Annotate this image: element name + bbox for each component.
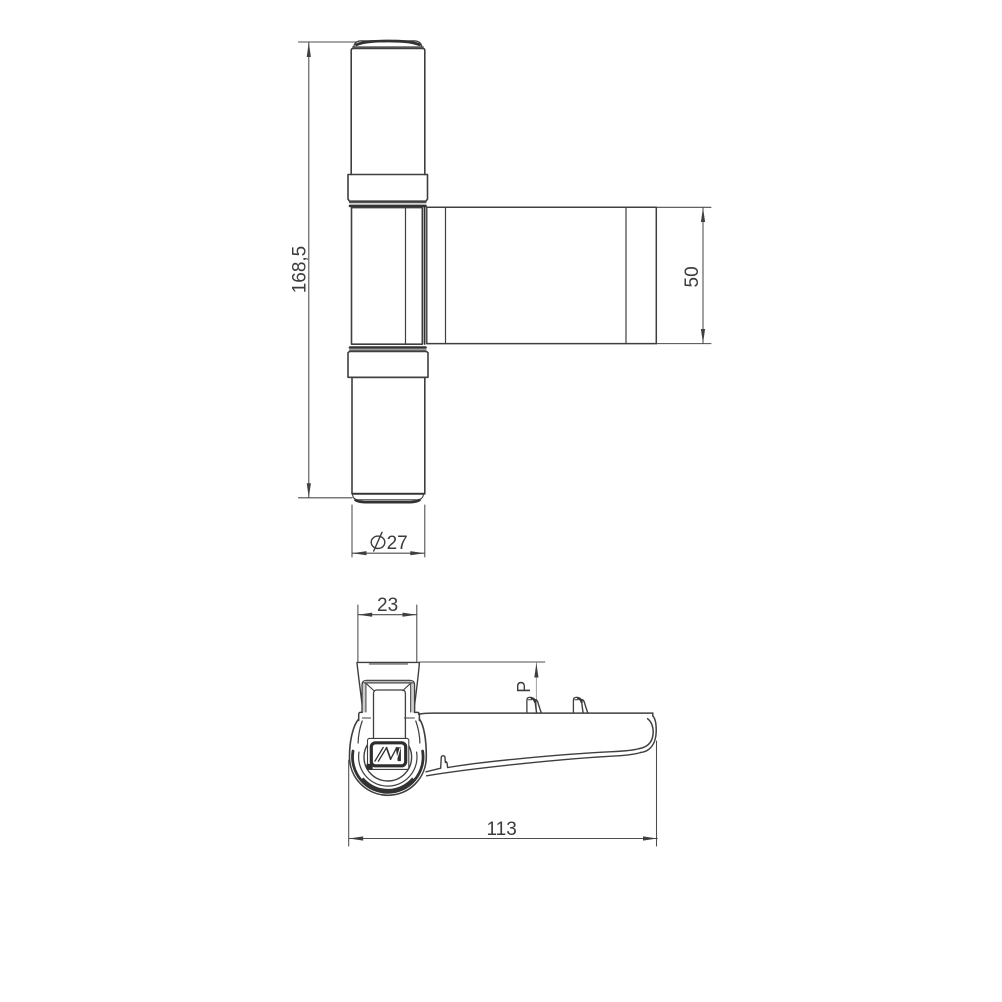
svg-text:113: 113 [487, 819, 517, 840]
svg-text:27: 27 [387, 533, 408, 554]
svg-text:50: 50 [682, 266, 703, 287]
svg-text:P: P [514, 681, 534, 693]
svg-text:168,5: 168,5 [289, 246, 310, 294]
svg-text:23: 23 [377, 595, 398, 616]
